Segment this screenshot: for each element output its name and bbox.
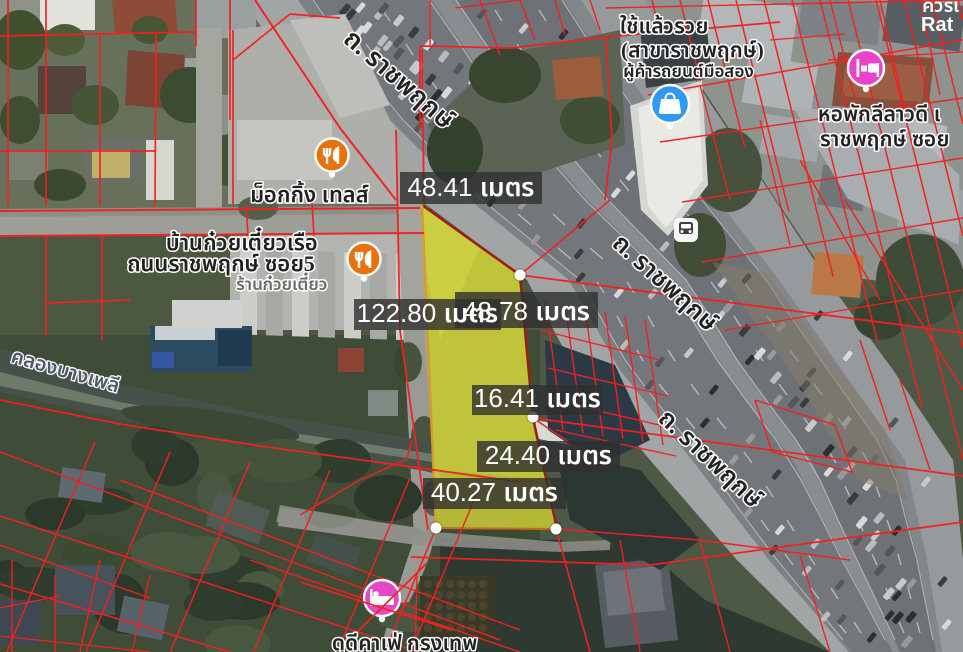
svg-text:ร้านก๋วยเตี๋ยว: ร้านก๋วยเตี๋ยว: [236, 272, 327, 298]
svg-text:Rat: Rat: [921, 14, 954, 36]
svg-text:48.78 เมตร: 48.78 เมตร: [463, 292, 590, 332]
svg-text:คลองบางเพลี: คลองบางเพลี: [8, 342, 124, 402]
svg-text:ถ. ราชพฤกษ์: ถ. ราชพฤกษ์: [603, 226, 726, 342]
svg-text:ถ. ราชพฤกษ์: ถ. ราชพฤกษ์: [649, 401, 771, 518]
svg-text:48.41 เมตร: 48.41 เมตร: [407, 168, 534, 208]
svg-text:ถ. ราชพฤกษ์: ถ. ราชพฤกษ์: [334, 20, 463, 140]
svg-text:ราชพฤกษ์ ซอย: ราชพฤกษ์ ซอย: [820, 125, 949, 156]
svg-text:16.41 เมตร: 16.41 เมตร: [474, 379, 601, 419]
svg-text:ดูดีคาเฟ่ กรุงเทพ: ดูดีคาเฟ่ กรุงเทพ: [332, 629, 477, 652]
svg-text:ม็อกกิ้ง เทลส์: ม็อกกิ้ง เทลส์: [250, 179, 369, 212]
svg-text:40.27 เมตร: 40.27 เมตร: [431, 473, 558, 513]
svg-text:ผู้ค้ารถยนต์มือสอง: ผู้ค้ารถยนต์มือสอง: [623, 59, 754, 85]
svg-text:24.40 เมตร: 24.40 เมตร: [485, 436, 612, 476]
